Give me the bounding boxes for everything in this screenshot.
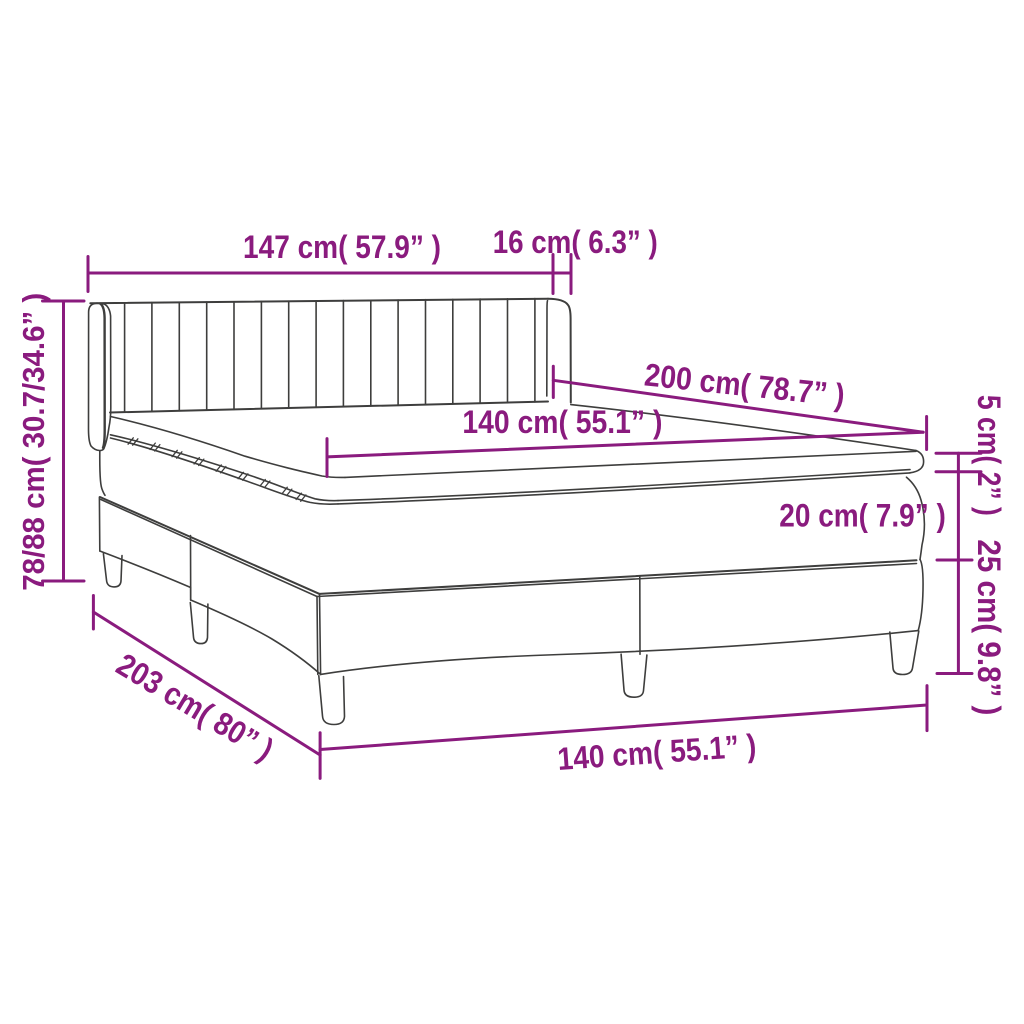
svg-text:147 cm( 57.9” ): 147 cm( 57.9” ) bbox=[243, 229, 441, 265]
svg-text:25 cm( 9.8” ): 25 cm( 9.8” ) bbox=[971, 539, 1007, 715]
svg-text:78/88 cm( 30.7/34.6” ): 78/88 cm( 30.7/34.6” ) bbox=[16, 293, 51, 591]
svg-text:20 cm( 7.9” ): 20 cm( 7.9” ) bbox=[779, 497, 946, 533]
svg-text:16 cm( 6.3” ): 16 cm( 6.3” ) bbox=[493, 224, 658, 260]
svg-text:5 cm( 2” ): 5 cm( 2” ) bbox=[971, 395, 1007, 516]
svg-text:140 cm( 55.1” ): 140 cm( 55.1” ) bbox=[462, 404, 662, 440]
